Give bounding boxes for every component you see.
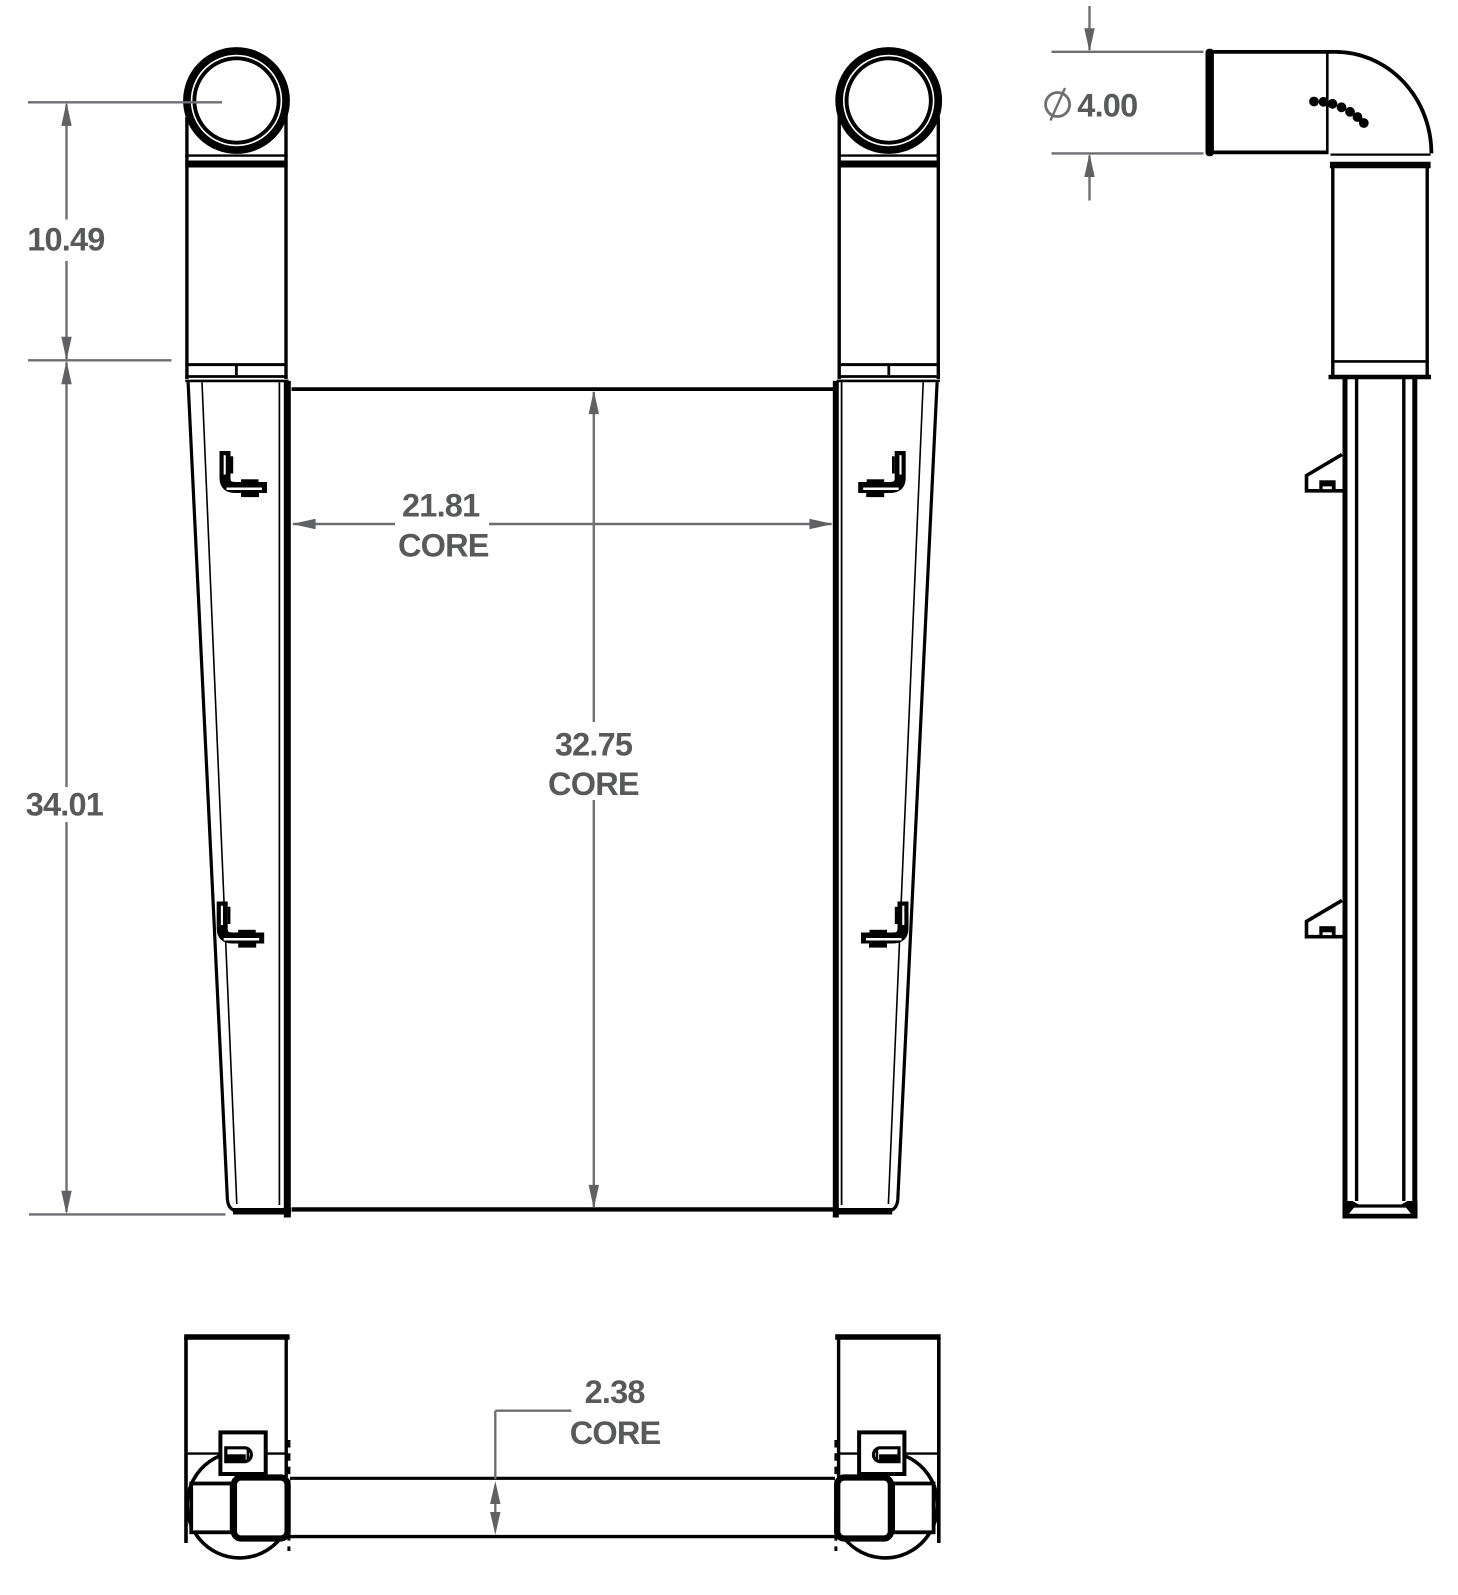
svg-text:21.81: 21.81 (402, 487, 480, 523)
svg-text:CORE: CORE (548, 766, 639, 802)
svg-text:34.01: 34.01 (26, 787, 104, 823)
svg-text:32.75: 32.75 (555, 726, 633, 762)
svg-text:10.49: 10.49 (27, 222, 104, 258)
svg-text:4.00: 4.00 (1077, 88, 1137, 124)
svg-text:2.38: 2.38 (585, 1374, 646, 1410)
svg-text:CORE: CORE (398, 527, 489, 563)
svg-text:CORE: CORE (570, 1415, 661, 1451)
